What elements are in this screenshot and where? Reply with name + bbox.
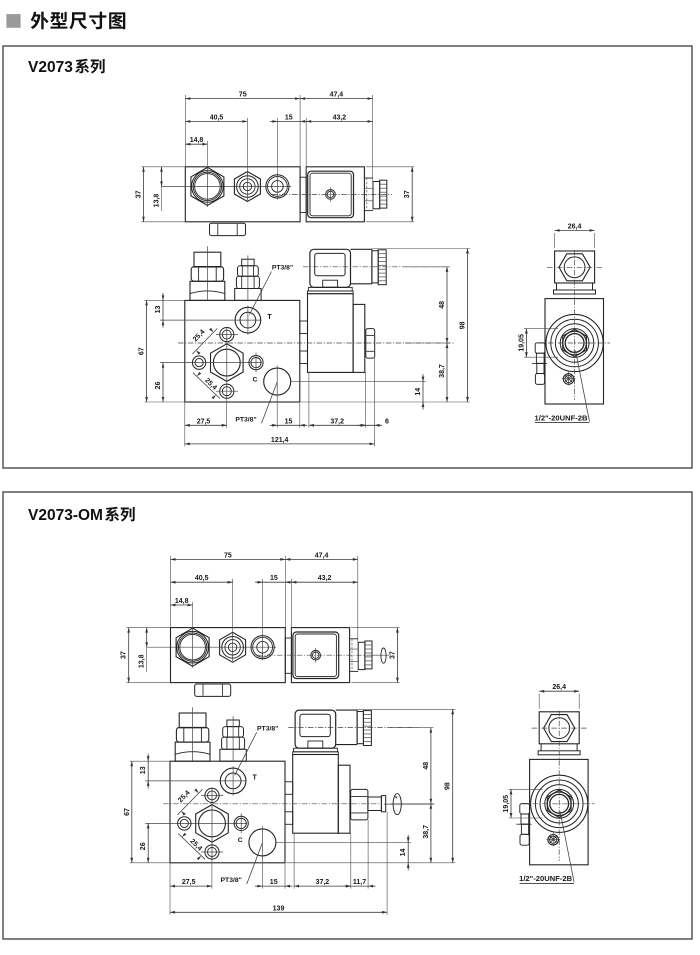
- svg-text:C: C: [238, 837, 243, 844]
- svg-text:PT3/8": PT3/8": [221, 877, 242, 884]
- svg-text:37: 37: [136, 190, 143, 198]
- svg-text:15: 15: [285, 114, 293, 121]
- svg-text:26,4: 26,4: [552, 684, 566, 691]
- svg-text:67: 67: [139, 347, 146, 355]
- svg-text:1/2"-20UNF-2B: 1/2"-20UNF-2B: [519, 874, 572, 883]
- svg-text:43,2: 43,2: [318, 575, 332, 582]
- svg-text:15: 15: [270, 879, 278, 886]
- svg-text:14,8: 14,8: [190, 137, 204, 144]
- svg-text:PT3/8": PT3/8": [257, 726, 278, 733]
- svg-text:19,05: 19,05: [503, 795, 510, 813]
- svg-text:26: 26: [140, 842, 147, 850]
- svg-text:40,5: 40,5: [210, 114, 224, 121]
- svg-text:38,7: 38,7: [423, 825, 430, 839]
- svg-text:37: 37: [121, 651, 128, 659]
- svg-text:19,05: 19,05: [518, 334, 525, 352]
- svg-text:98: 98: [445, 782, 452, 790]
- svg-text:47,4: 47,4: [330, 92, 344, 99]
- svg-text:37,2: 37,2: [316, 879, 330, 886]
- svg-text:37: 37: [404, 190, 411, 198]
- svg-text:C: C: [253, 376, 258, 383]
- svg-text:37,2: 37,2: [330, 418, 344, 425]
- svg-text:T: T: [267, 314, 272, 321]
- svg-text:98: 98: [460, 321, 467, 329]
- svg-text:14: 14: [400, 849, 407, 857]
- svg-text:27,5: 27,5: [197, 418, 211, 425]
- svg-text:V2073: V2073: [28, 59, 73, 76]
- svg-text:75: 75: [224, 552, 232, 559]
- svg-text:14,8: 14,8: [175, 598, 189, 605]
- svg-text:38,7: 38,7: [439, 364, 446, 378]
- svg-text:47,4: 47,4: [315, 552, 329, 559]
- svg-text:26: 26: [155, 382, 162, 390]
- svg-text:14: 14: [415, 388, 422, 396]
- svg-text:1/2"-20UNF-2B: 1/2"-20UNF-2B: [535, 413, 588, 422]
- svg-text:48: 48: [439, 301, 446, 309]
- svg-text:26,4: 26,4: [568, 223, 582, 230]
- svg-text:13,8: 13,8: [154, 194, 161, 208]
- svg-text:67: 67: [124, 808, 131, 816]
- svg-text:PT3/8": PT3/8": [235, 416, 256, 423]
- svg-text:13,8: 13,8: [139, 654, 146, 668]
- svg-text:121,4: 121,4: [271, 437, 289, 444]
- svg-text:6: 6: [385, 418, 389, 425]
- svg-text:13: 13: [140, 766, 147, 774]
- svg-text:25,4: 25,4: [177, 789, 192, 804]
- svg-text:27,5: 27,5: [182, 879, 196, 886]
- svg-text:11,7: 11,7: [353, 879, 366, 886]
- svg-text:139: 139: [273, 905, 285, 912]
- svg-text:PT3/8": PT3/8": [272, 265, 293, 272]
- svg-text:15: 15: [270, 575, 278, 582]
- svg-text:40,5: 40,5: [195, 575, 209, 582]
- svg-text:75: 75: [239, 92, 247, 99]
- svg-text:V2073-OM: V2073-OM: [28, 507, 103, 524]
- svg-text:43,2: 43,2: [333, 114, 347, 121]
- svg-text:37: 37: [389, 651, 396, 659]
- svg-text:48: 48: [423, 762, 430, 770]
- svg-text:13: 13: [155, 306, 162, 314]
- svg-text:25,4: 25,4: [192, 329, 207, 344]
- svg-text:T: T: [253, 775, 258, 782]
- svg-text:15: 15: [285, 418, 293, 425]
